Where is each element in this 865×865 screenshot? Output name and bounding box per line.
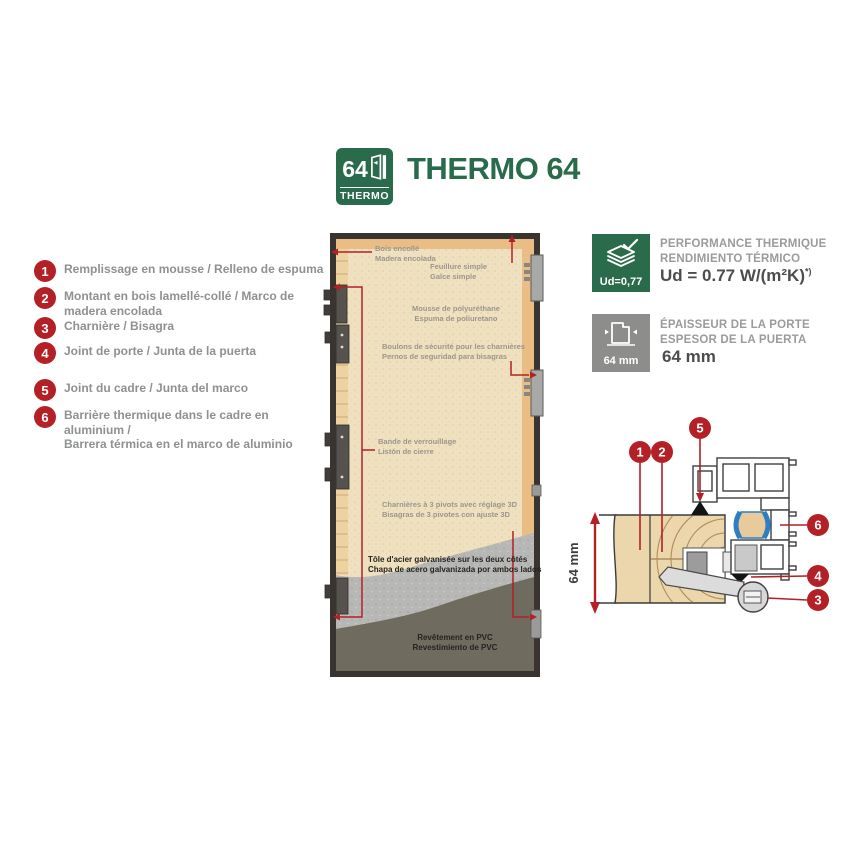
cross-section-detail: 64 mm (565, 400, 865, 635)
legend-label-line2: Barrera térmica en el marco de aluminio (64, 437, 320, 452)
thickness-value: 64 mm (662, 347, 716, 367)
legend-number: 3 (34, 317, 56, 339)
thermo64-logo: 64 THERMO (336, 148, 393, 205)
legend-number: 1 (34, 260, 56, 282)
door-label-rebate: Feuillure simple Galce simple (430, 262, 487, 282)
door-icon (370, 154, 387, 185)
legend-label: Remplissage en mousse / Relleno de espum… (64, 262, 326, 277)
thermal-badge-value: Ud=0,77 (592, 276, 650, 288)
svg-text:5: 5 (696, 421, 703, 436)
cross-section-illustration: 64 mm (565, 400, 865, 635)
legend-label: Montant en bois lamellé-collé / Marco de… (64, 289, 322, 318)
page-title: THERMO 64 (407, 151, 580, 187)
thermal-break (735, 512, 769, 538)
legend-number: 2 (34, 287, 56, 309)
thermal-note: *) (805, 266, 812, 276)
legend-label: Barrière thermique dans le cadre en alum… (64, 408, 320, 452)
page: 64 THERMO THERMO 64 1 Remplissage en mou… (0, 0, 865, 865)
frame-gasket (691, 501, 709, 515)
legend-number: 5 (34, 379, 56, 401)
legend-label-line1: Barrière thermique dans le cadre en alum… (64, 408, 320, 437)
door-label-security-bolts: Boulons de sécurité pour les charnières … (382, 342, 525, 362)
svg-text:2: 2 (658, 445, 665, 460)
thermal-value: Ud = 0.77 W/(m²K)*) (660, 266, 812, 286)
door-label-pvc: Revêtement en PVC Revestimiento de PVC (375, 633, 535, 653)
door-label-hinges: Charnières à 3 pivots avec réglage 3D Bi… (382, 500, 517, 520)
layers-check-icon (603, 238, 639, 270)
svg-text:1: 1 (636, 445, 643, 460)
thickness-badge: 64 mm (592, 314, 650, 372)
door-label-foam: Mousse de polyuréthane Espuma de poliure… (368, 304, 544, 324)
logo-label: THERMO (340, 187, 389, 205)
svg-text:6: 6 (814, 518, 821, 533)
legend-label: Joint de porte / Junta de la puerta (64, 344, 322, 359)
thermal-badge: Ud=0,77 (592, 234, 650, 292)
door-label-glued-wood: Bois encollé Madera encolada (375, 244, 436, 264)
thickness-title: ÉPAISSEUR DE LA PORTE ESPESOR DE LA PUER… (660, 318, 810, 348)
thickness-badge-value: 64 mm (592, 355, 650, 367)
dimension-label: 64 mm (566, 542, 581, 583)
legend-number: 4 (34, 342, 56, 364)
door-label-steel-sheet: Tôle d'acier galvanisée sur les deux côt… (368, 555, 546, 575)
svg-text:3: 3 (814, 593, 821, 608)
dimension-64mm: 64 mm (566, 512, 600, 614)
door-label-locking-strip: Bande de verrouillage Listón de cierre (378, 437, 456, 457)
legend-label: Joint du cadre / Junta del marco (64, 381, 322, 396)
door-diagram: Bois encollé Madera encolada Feuillure s… (318, 233, 548, 677)
svg-text:4: 4 (814, 569, 822, 584)
legend-number: 6 (34, 406, 56, 428)
logo-number: 64 (342, 158, 368, 181)
logo-top: 64 (336, 148, 393, 187)
door-thickness-icon (603, 319, 639, 349)
legend-label: Charnière / Bisagra (64, 319, 322, 334)
thermal-title: PERFORMANCE THERMIQUE RENDIMIENTO TÉRMIC… (660, 237, 826, 267)
